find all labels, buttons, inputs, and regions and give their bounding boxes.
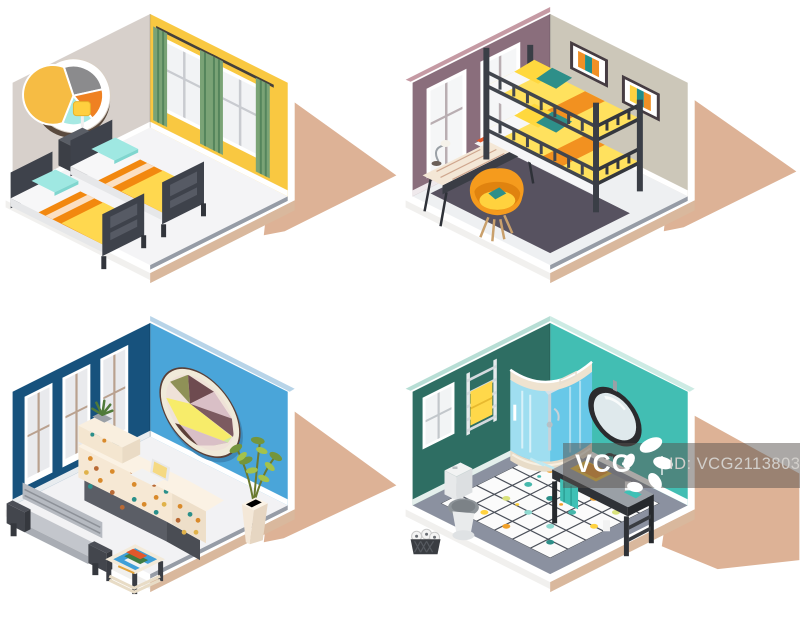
wall-corner <box>149 323 151 437</box>
watermark-band: VCG ID: VCG211380310346 <box>563 443 800 488</box>
illustration-twin-bedroom <box>0 0 400 309</box>
watermark-divider <box>661 456 663 475</box>
wall-corner <box>149 14 151 128</box>
stock-illustration-canvas: VCG ID: VCG211380310346 <box>0 0 800 618</box>
illustration-bunk-bedroom <box>400 0 800 309</box>
vcg-flower-icon <box>621 433 673 499</box>
paper-basket <box>411 529 441 554</box>
illustration-lobby-reception <box>0 309 400 618</box>
watermark-id-text: ID: VCG211380310346 <box>669 455 800 474</box>
